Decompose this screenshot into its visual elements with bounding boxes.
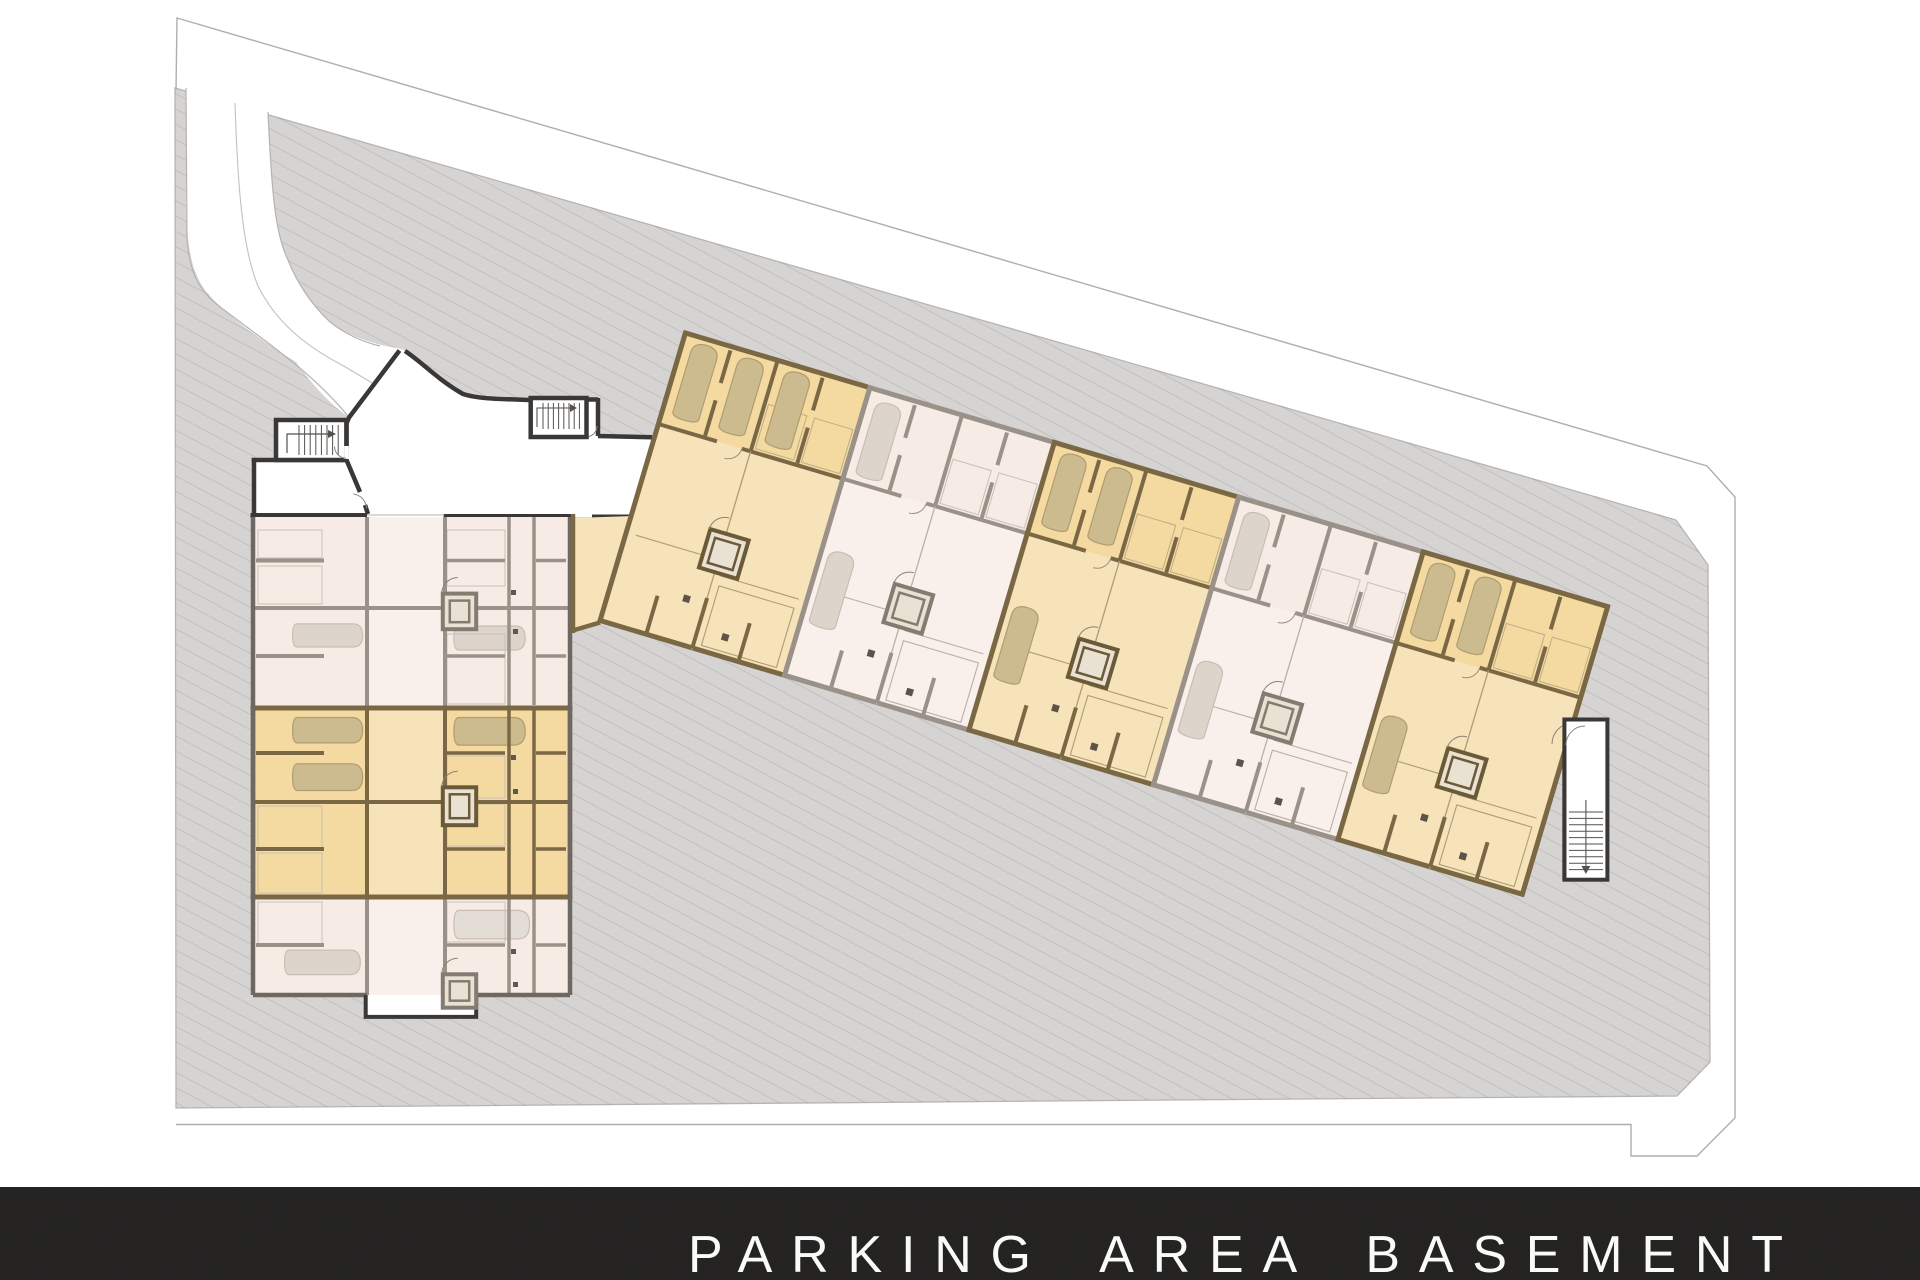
svg-text:PARKING AREA BASEMENT: PARKING AREA BASEMENT [688, 1226, 1802, 1280]
